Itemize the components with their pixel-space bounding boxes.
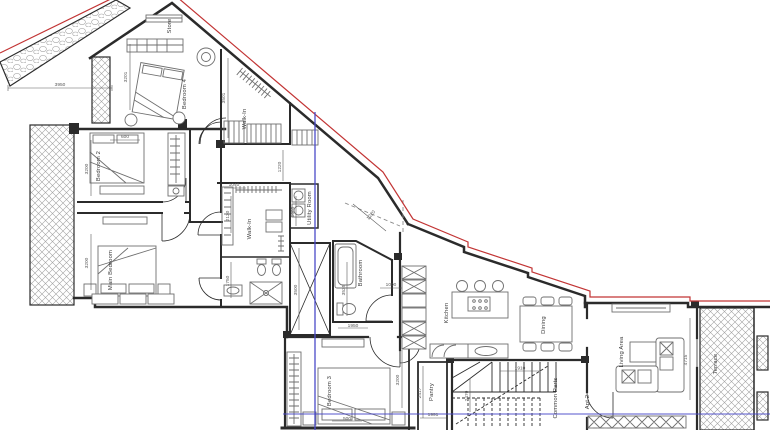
side-table (125, 114, 137, 126)
dim-bedroom3-height: 3200 (395, 374, 401, 385)
dim-diag-offset: 1220 (366, 209, 378, 221)
floor-plan-drawing: 3950 3201 3501 600 1220 1040 2130 1750 1… (0, 0, 770, 430)
side-table (173, 112, 185, 124)
kitchen-island (452, 281, 508, 319)
bed-bedroom3 (303, 339, 405, 425)
furniture (84, 15, 686, 428)
walkin-top-closets (224, 68, 318, 145)
door-bathroom (366, 295, 392, 321)
terrace-paving (700, 308, 754, 430)
wall-walkin-top-bottom (221, 103, 290, 144)
door-bedroom3 (370, 337, 400, 367)
dim-bed3-gap: 500 (343, 416, 351, 422)
room-label-main-bedroom: Main Bedroom (108, 250, 114, 290)
dim-main-bedroom-height: 3200 (84, 257, 90, 268)
ensuite-fixtures (224, 259, 282, 304)
room-label-utility: Utility Room (307, 191, 313, 225)
wall-bed2-corridor (78, 202, 222, 222)
room-label-store: Store (167, 19, 173, 34)
dim-bedroom4-right: 3501 (221, 92, 227, 103)
door-walkin-mid (198, 212, 221, 235)
dim-utility-height: 1685 (290, 206, 296, 217)
dim-pantry-height: 2417 (417, 387, 423, 398)
bathroom-fixtures (335, 244, 356, 315)
bed-main-bedroom (84, 217, 174, 304)
room-label-walkin-top: Walk-In (242, 109, 248, 130)
room-label-dining: Dining (541, 316, 547, 334)
room-label-terrace: Terrace (713, 354, 719, 375)
stair-upper-flight (452, 362, 556, 392)
room-label-living: Living Area (619, 336, 625, 367)
room-label-bedroom4: Bedroom 4 (182, 78, 188, 109)
dim-bathroom-width: 1950 (348, 323, 359, 329)
dim-bedroom4-left: 3201 (123, 71, 129, 82)
dim-hall-width: 1000 (386, 282, 397, 288)
room-label-kitchen: Kitchen (444, 303, 450, 324)
wardrobe-bedroom2 (168, 133, 185, 196)
dim-shaft-height: 3500 (293, 284, 299, 295)
dim-walkin-gap: 1220 (277, 161, 283, 172)
door-main-bedroom (162, 213, 190, 241)
room-label-bedroom2: Bedroom 2 (96, 151, 102, 181)
dim-site-width: 3950 (55, 82, 66, 88)
dim-stair-height: 2470 (464, 390, 470, 401)
dim-walkin-mid-height: 2130 (225, 210, 231, 221)
dim-bedroom2-height: 3200 (84, 163, 90, 174)
dim-bathroom-height: 3535 (341, 284, 347, 295)
room-label-walkin-mid: Walk-In (247, 219, 253, 240)
room-label-apt2: Apt 2 (585, 395, 591, 410)
dim-ensuite-height: 1750 (225, 275, 231, 286)
dim-bed4-width: 600 (121, 134, 129, 140)
room-label-bathroom: Bathroom (358, 260, 364, 287)
door-ensuite (199, 278, 221, 300)
wardrobe-bedroom3 (287, 352, 301, 426)
masonry-walls (0, 0, 768, 430)
dim-pantry-width: 1991 (428, 412, 439, 418)
floor-plan-canvas: 3950 3201 3501 600 1220 1040 2130 1750 1… (0, 0, 770, 430)
wall-band-upper-left (92, 57, 110, 123)
living-balustrade (588, 416, 686, 428)
wardrobe-bedroom4 (127, 15, 183, 52)
room-label-pantry: Pantry (429, 383, 435, 401)
room-label-bedroom3: Bedroom 3 (327, 376, 333, 406)
dim-stair-width: 1910 (515, 366, 526, 372)
wall-band-left (30, 125, 74, 305)
chair-round (197, 48, 215, 66)
bed-bedroom4 (132, 63, 184, 120)
dim-corridor-top: 1040 (229, 182, 240, 188)
dim-living-height: 4715 (683, 354, 689, 365)
room-label-common-parts: Common Parts (553, 377, 559, 418)
outer-wall-stub-1 (757, 336, 768, 370)
outer-wall-stub-2 (757, 392, 768, 420)
